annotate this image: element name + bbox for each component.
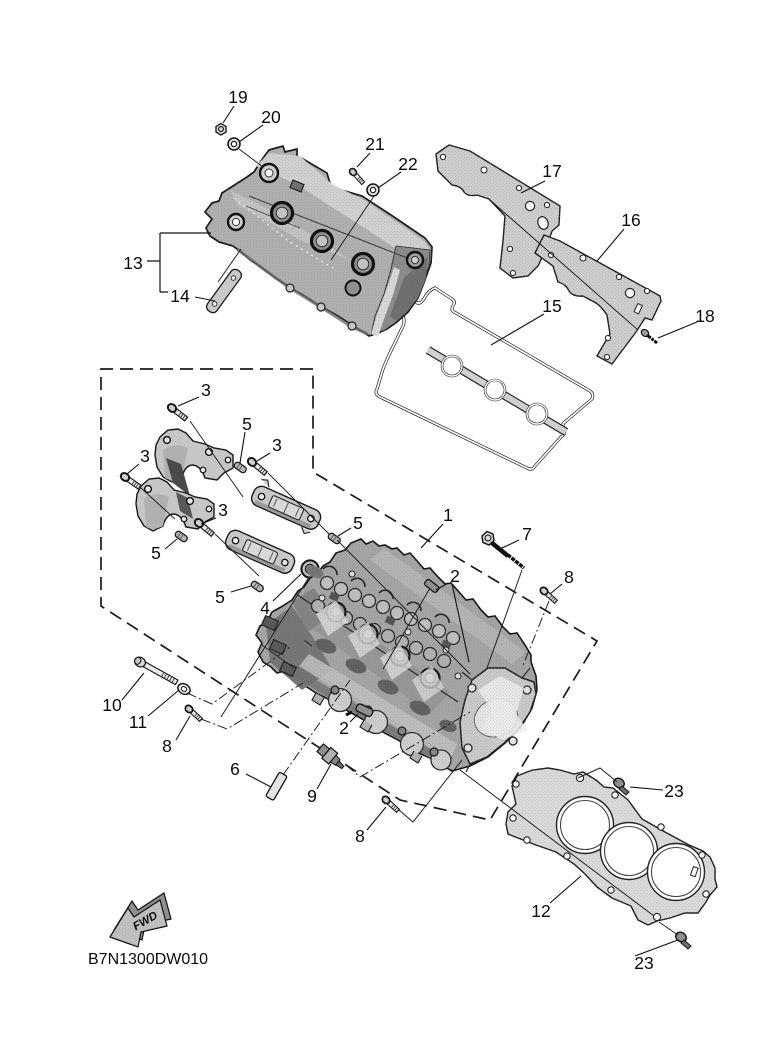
svg-text:12: 12 bbox=[531, 901, 550, 921]
svg-text:7: 7 bbox=[522, 524, 532, 544]
svg-text:21: 21 bbox=[365, 134, 384, 154]
svg-text:2: 2 bbox=[450, 566, 460, 586]
svg-text:23: 23 bbox=[664, 781, 683, 801]
svg-text:8: 8 bbox=[564, 567, 574, 587]
svg-text:17: 17 bbox=[542, 161, 561, 181]
svg-text:2: 2 bbox=[339, 718, 349, 738]
svg-text:3: 3 bbox=[218, 500, 228, 520]
svg-text:8: 8 bbox=[162, 736, 172, 756]
svg-text:5: 5 bbox=[215, 587, 225, 607]
svg-text:5: 5 bbox=[242, 414, 252, 434]
svg-text:19: 19 bbox=[228, 87, 247, 107]
svg-text:11: 11 bbox=[129, 712, 147, 732]
svg-text:8: 8 bbox=[355, 826, 365, 846]
svg-text:4: 4 bbox=[260, 598, 270, 618]
svg-text:3: 3 bbox=[272, 435, 282, 455]
svg-text:18: 18 bbox=[695, 306, 714, 326]
svg-text:10: 10 bbox=[102, 695, 122, 715]
svg-text:9: 9 bbox=[307, 786, 317, 806]
svg-text:3: 3 bbox=[140, 446, 150, 466]
svg-text:14: 14 bbox=[170, 286, 190, 306]
svg-text:20: 20 bbox=[261, 107, 281, 127]
svg-text:5: 5 bbox=[151, 543, 161, 563]
svg-text:B7N1300DW010: B7N1300DW010 bbox=[88, 951, 208, 968]
svg-text:16: 16 bbox=[621, 210, 640, 230]
svg-text:15: 15 bbox=[542, 296, 561, 316]
svg-text:1: 1 bbox=[443, 505, 453, 525]
svg-text:13: 13 bbox=[123, 253, 142, 273]
svg-text:3: 3 bbox=[201, 380, 211, 400]
svg-text:5: 5 bbox=[353, 513, 363, 533]
svg-text:22: 22 bbox=[398, 154, 417, 174]
svg-text:6: 6 bbox=[230, 759, 240, 779]
svg-text:23: 23 bbox=[634, 953, 653, 973]
